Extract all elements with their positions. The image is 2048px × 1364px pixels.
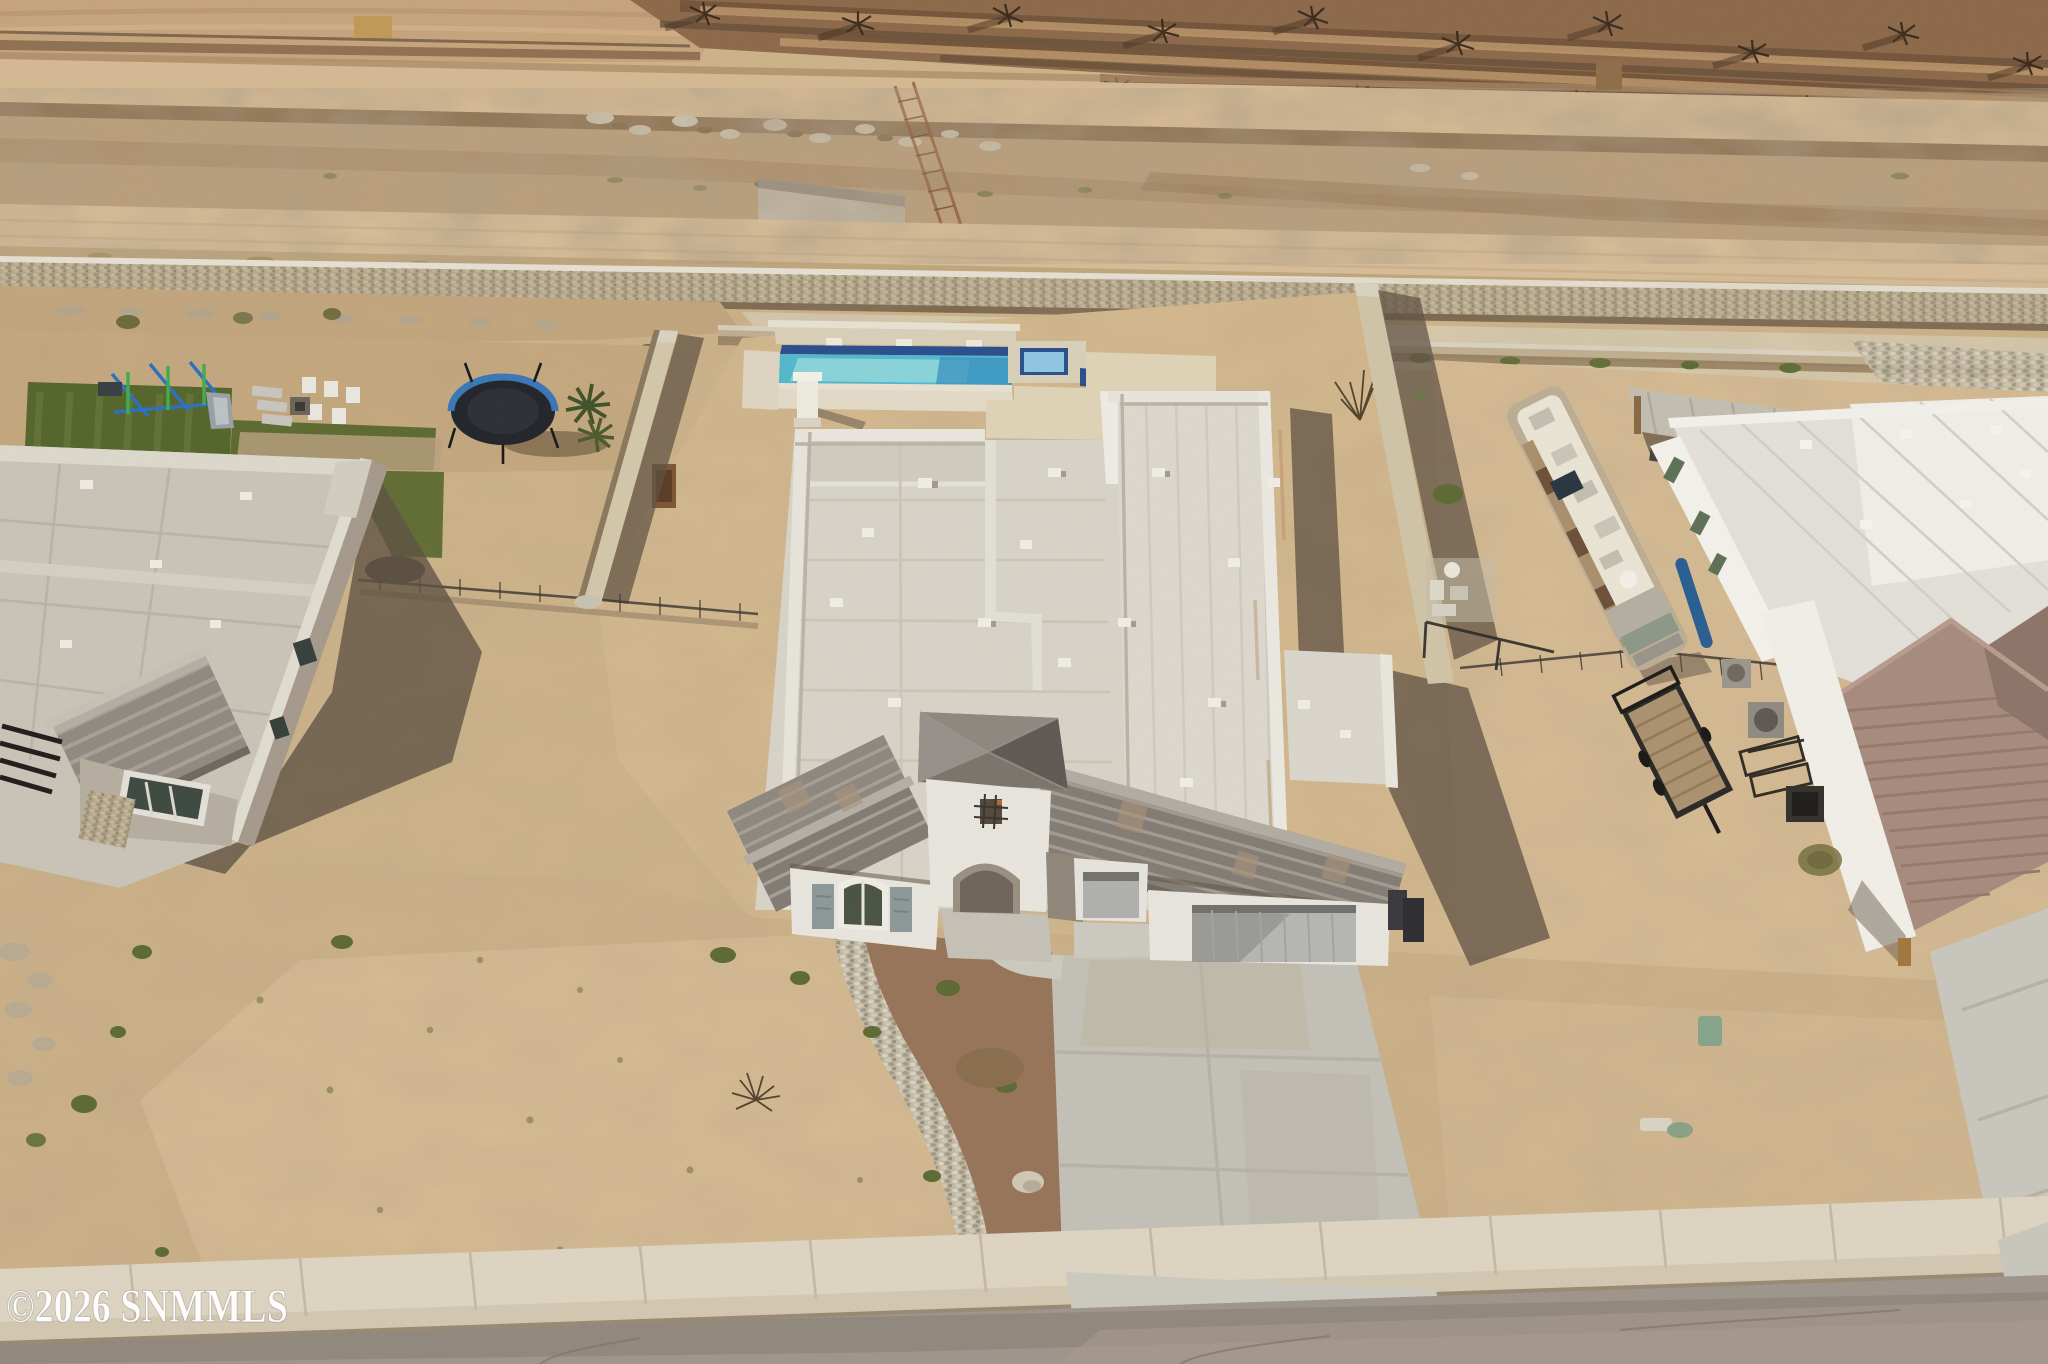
- svg-text:©2026 SNMMLS: ©2026 SNMMLS: [6, 1280, 288, 1333]
